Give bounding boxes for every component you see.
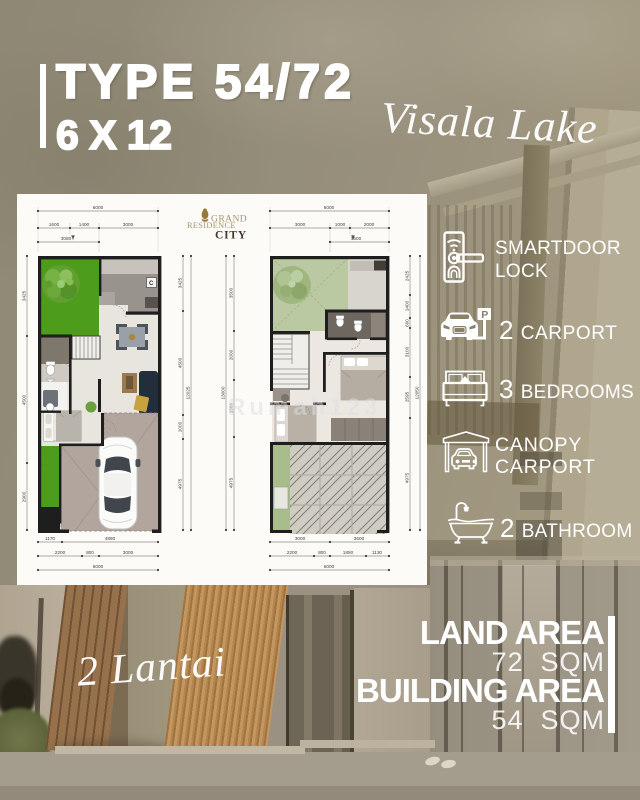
svg-text:4975: 4975 [229, 477, 234, 488]
svg-text:1130: 1130 [372, 550, 382, 555]
svg-text:800: 800 [318, 550, 326, 555]
svg-text:12025: 12025 [186, 386, 191, 399]
svg-text:4975: 4975 [178, 478, 183, 489]
svg-text:3500: 3500 [229, 287, 234, 298]
svg-text:6000: 6000 [93, 205, 104, 210]
svg-text:4880: 4880 [105, 536, 116, 541]
svg-text:1000: 1000 [178, 421, 183, 432]
svg-text:3080: 3080 [61, 236, 72, 241]
svg-text:3425: 3425 [178, 277, 183, 288]
svg-text:2900: 2900 [22, 491, 27, 502]
svg-text:800: 800 [86, 550, 94, 555]
svg-text:3100: 3100 [405, 346, 410, 357]
svg-text:4500: 4500 [178, 357, 183, 368]
svg-text:1600: 1600 [49, 222, 60, 227]
svg-text:600: 600 [405, 319, 410, 327]
svg-text:3425: 3425 [22, 290, 27, 301]
svg-text:3000: 3000 [123, 550, 134, 555]
svg-text:6000: 6000 [93, 564, 104, 569]
svg-text:13000: 13000 [221, 386, 226, 399]
svg-text:4500: 4500 [22, 394, 27, 405]
svg-text:3000: 3000 [123, 222, 134, 227]
svg-text:C: C [149, 281, 154, 287]
svg-text:P: P [481, 309, 488, 321]
svg-text:4975: 4975 [405, 472, 410, 483]
svg-text:2200: 2200 [287, 550, 298, 555]
svg-text:1400: 1400 [79, 222, 90, 227]
svg-text:3000: 3000 [295, 536, 306, 541]
svg-text:3600: 3600 [351, 236, 362, 241]
svg-text:2200: 2200 [55, 550, 66, 555]
svg-text:2425: 2425 [405, 270, 410, 281]
svg-text:6000: 6000 [324, 205, 335, 210]
svg-text:2000: 2000 [229, 349, 234, 360]
svg-text:6000: 6000 [324, 564, 335, 569]
svg-text:1400: 1400 [405, 300, 410, 311]
svg-text:3600: 3600 [354, 536, 365, 541]
svg-text:CITY: CITY [215, 230, 247, 242]
svg-text:1000: 1000 [335, 222, 346, 227]
svg-text:2000: 2000 [364, 222, 375, 227]
svg-text:1850: 1850 [343, 550, 354, 555]
svg-text:1170: 1170 [45, 536, 55, 541]
svg-text:3000: 3000 [295, 222, 306, 227]
